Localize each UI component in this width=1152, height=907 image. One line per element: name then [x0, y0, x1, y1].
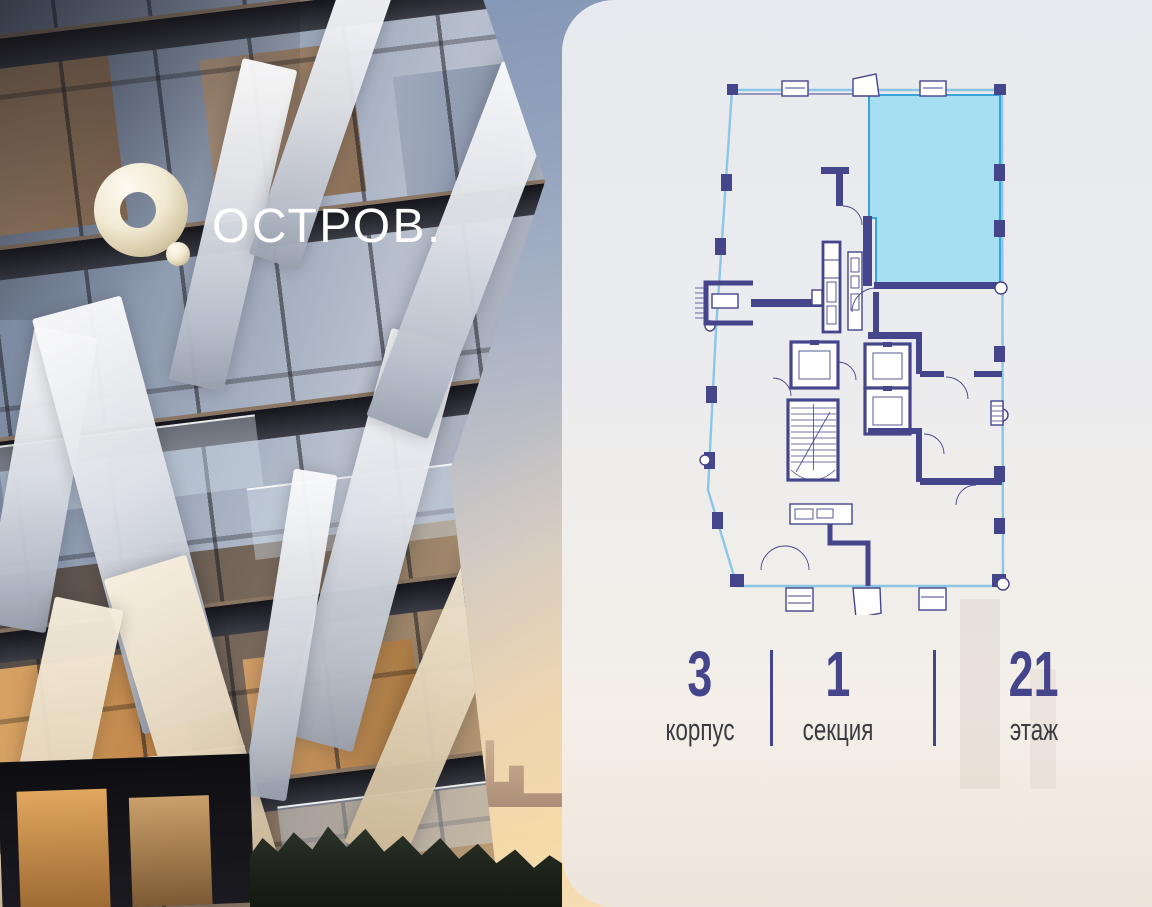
logo-text: ОСТРОВ.: [212, 199, 443, 254]
lit-window: [17, 789, 111, 907]
interior-room: [0, 754, 255, 907]
stat-etazh-value: 21: [1009, 642, 1059, 706]
apartment-stats: 3 корпус 1 секция 21 этаж: [562, 642, 1152, 754]
stat-korpus-value: 3: [688, 642, 713, 706]
stat-etazh: 21 этаж: [944, 642, 1124, 748]
stats-divider: [933, 650, 936, 746]
brand-logo: ОСТРОВ.: [90, 158, 443, 268]
facade-vents: [782, 74, 946, 96]
stairwell: [788, 400, 838, 480]
stat-korpus-label: корпус: [635, 712, 765, 748]
torus-logo-icon: [90, 158, 200, 268]
facade-vents-bottom: [786, 588, 946, 615]
entry-walls: [761, 504, 868, 586]
balcony: [695, 283, 823, 323]
apartment-page: ОСТРОВ.: [0, 0, 1152, 907]
vent-grille: [991, 401, 1003, 425]
floor-plan: [690, 70, 1030, 615]
lit-window: [129, 795, 213, 907]
stat-sekcia: 1 секция: [748, 642, 928, 748]
stat-sekcia-label: секция: [773, 712, 903, 748]
stat-sekcia-value: 1: [826, 642, 851, 706]
details-card: 3 корпус 1 секция 21 этаж: [562, 0, 1152, 907]
selected-apartment-area[interactable]: [869, 95, 1000, 285]
stat-etazh-label: этаж: [969, 712, 1099, 748]
